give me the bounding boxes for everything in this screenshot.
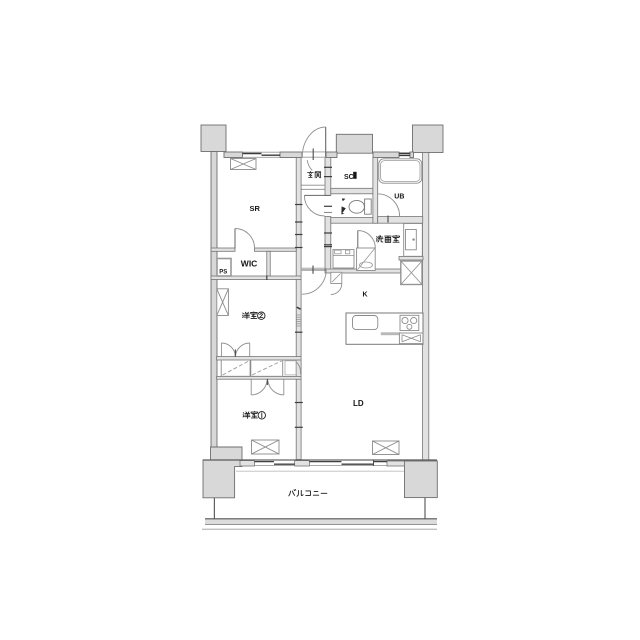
svg-text:LD: LD [353, 399, 364, 408]
svg-text:WIC: WIC [241, 258, 258, 268]
svg-text:UB: UB [394, 193, 404, 200]
svg-text:PS: PS [219, 270, 227, 276]
svg-text:K: K [363, 291, 368, 298]
svg-text:SR: SR [250, 204, 261, 213]
svg-text:SC: SC [344, 174, 354, 181]
